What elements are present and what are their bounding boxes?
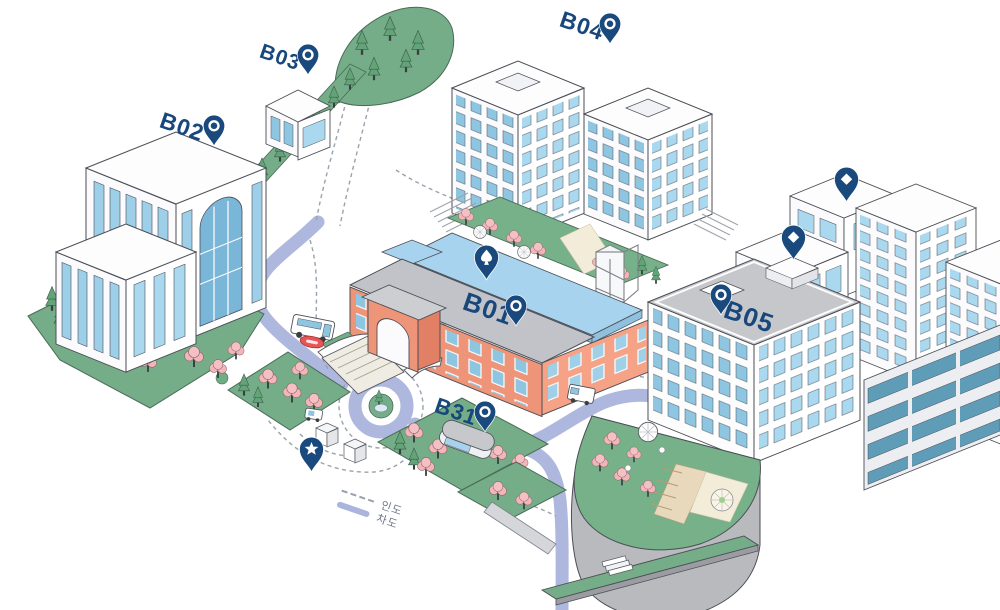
pin-b04-icon	[598, 12, 622, 45]
rooftop-pin-upper[interactable]	[833, 166, 860, 208]
courtyard-pin[interactable]	[473, 244, 500, 286]
pin-b02[interactable]	[202, 114, 226, 152]
pin-b01[interactable]	[504, 294, 528, 332]
pin-b31-icon	[473, 400, 497, 433]
plaza-pin-icon	[298, 436, 325, 473]
pin-b04[interactable]	[598, 12, 622, 50]
pin-b02-icon	[202, 114, 226, 147]
courtyard-pin-icon	[473, 244, 500, 281]
marker-overlay: B02B03B04B01B05B31	[0, 0, 1000, 610]
pin-b31[interactable]	[473, 400, 497, 438]
pin-b03-icon	[296, 43, 320, 76]
pin-b05[interactable]	[709, 283, 733, 321]
pin-b03[interactable]	[296, 43, 320, 81]
rooftop-pin-lower[interactable]	[780, 224, 807, 266]
rooftop-pin-lower-icon	[780, 224, 807, 261]
pin-b05-icon	[709, 283, 733, 316]
campus-map: B02B03B04B01B05B31 인도차도	[0, 0, 1000, 610]
plaza-pin[interactable]	[298, 436, 325, 478]
building-label-b02[interactable]: B02	[156, 107, 208, 147]
pin-b01-icon	[504, 294, 528, 327]
rooftop-pin-upper-icon	[833, 166, 860, 203]
